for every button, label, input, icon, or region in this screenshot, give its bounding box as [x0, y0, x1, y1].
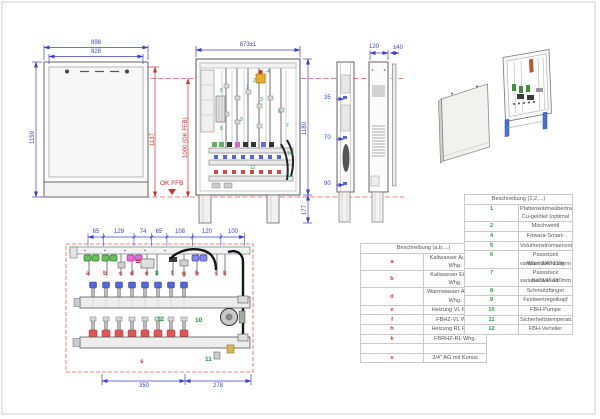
detail-view — [66, 244, 253, 372]
dim-front-outer-width: 898 — [78, 40, 114, 47]
port-b: b — [103, 270, 107, 277]
table-row: 9 Festwertregelkopf — [465, 296, 573, 306]
table-row: 6 Passstück Wärmezählungvariabel 3/4"-11… — [465, 251, 573, 269]
part-label-11: 11 — [287, 174, 292, 179]
port-f: f — [171, 270, 173, 277]
table-row: 7 Passstück Kaltwasservariabel 3/4"-110m… — [465, 268, 573, 286]
detail-dim-278: 278 — [204, 383, 232, 390]
front-view — [44, 62, 148, 197]
pump-profile — [343, 144, 350, 172]
part-label-1: 1 — [246, 86, 249, 91]
table-header: Beschreibung (1,2,...) — [465, 195, 573, 205]
port-h: h — [195, 270, 199, 277]
plate-heat-exchanger — [216, 96, 225, 122]
mixing-valve — [256, 74, 265, 83]
ffb-label: OK FFB — [160, 180, 183, 187]
table-row: 4 Friwara-Smart-Regler — [465, 231, 573, 241]
detail-dim-65a: 65 — [89, 229, 103, 236]
dim-front-height-right: 1137 — [150, 133, 157, 146]
dim-side-90: 90 — [324, 181, 331, 188]
part-label-12: 12 — [250, 166, 256, 171]
iso-red-strip — [529, 59, 534, 73]
shutoff-valves — [212, 142, 274, 147]
manifold-flow — [74, 282, 250, 308]
cabinet-leg — [199, 195, 211, 223]
detail-dim-108: 108 — [173, 229, 187, 236]
detail-dim-350: 350 — [130, 383, 158, 390]
dim-open-base: 177 — [302, 205, 309, 215]
port-e: e — [145, 270, 149, 277]
drawing-sheet: 898 828 1159 1137 1000 (OK FFB) OK FFB 8… — [0, 0, 600, 419]
dim-open-width: 873±1 — [228, 42, 268, 49]
side-views — [337, 62, 396, 222]
detail-dim-74: 74 — [136, 229, 150, 236]
cabinet-leg — [339, 192, 350, 222]
part-label-3: 3 — [260, 98, 263, 103]
wall-rail — [70, 247, 250, 254]
part-label-9: 9 — [240, 118, 243, 123]
door-screw-icon — [65, 70, 69, 74]
detail-label-8: 8 — [155, 270, 159, 277]
table-row: 5 Volumenstromsensor — [465, 241, 573, 251]
dim-side-depth: 120 — [362, 44, 386, 51]
detail-dim-100: 100 — [226, 229, 240, 236]
detail-valves — [84, 255, 207, 268]
dim-door-gap: ±40 — [393, 45, 403, 52]
table-row: 12 FBH-Verteiler — [465, 325, 573, 335]
port-k: k — [223, 270, 227, 277]
table-row: kFBRHZ-RL Whg. — [361, 334, 487, 344]
table-row: s3/4" AG mit Konus — [361, 353, 487, 363]
open-cabinet-view — [196, 59, 300, 223]
dim-front-inner-width: 828 — [78, 49, 114, 56]
table-row — [361, 344, 487, 354]
table-row: 2 Mischventil — [465, 222, 573, 232]
detail-label-12: 12 — [157, 316, 164, 323]
legend-table-numbers: Beschreibung (1,2,...) 1 Plattenwärmeübe… — [464, 194, 573, 335]
part-label-5: 5 — [220, 89, 223, 94]
table-row: 10 FBH-Pumpe — [465, 305, 573, 315]
port-a: a — [86, 270, 90, 277]
port-g: g — [182, 270, 186, 277]
left-panel — [201, 70, 214, 132]
iso-leg — [543, 112, 547, 129]
cabinet-leg — [372, 192, 383, 222]
detail-label-s: s — [140, 358, 144, 365]
part-label-6: 6 — [278, 110, 281, 115]
ffb-marker-icon — [168, 189, 176, 195]
dim-open-height: 1180 — [302, 122, 309, 135]
dim-side-35: 35 — [324, 95, 331, 102]
detail-dim-120: 120 — [200, 229, 214, 236]
port-d: d — [130, 270, 134, 277]
table-row: 8 Schmutzfänger — [465, 286, 573, 296]
dim-ffb-height: 1000 (OK FFB) — [183, 117, 190, 158]
dimensions-red — [148, 67, 188, 197]
port-c: c — [119, 270, 123, 277]
part-label-4: 4 — [267, 70, 270, 75]
dim-front-height-left: 1159 — [30, 131, 37, 144]
door-screw-icon — [125, 70, 129, 74]
part-label-10: 10 — [287, 152, 293, 157]
port-i: i — [215, 270, 217, 277]
detail-label-10: 10 — [195, 317, 202, 324]
part-label-8: 8 — [220, 127, 223, 132]
iso-views — [439, 50, 552, 164]
table-row: 1 PlattenwärmeübertragerCu-gelötet (opti… — [465, 204, 573, 222]
door-profile — [393, 64, 397, 186]
part-label-2: 2 — [253, 79, 256, 84]
detail-label-11: 11 — [205, 356, 212, 363]
table-header-row: Beschreibung (1,2,...) — [465, 195, 573, 205]
detail-dim-65b: 65 — [152, 229, 166, 236]
part-label-7: 7 — [286, 124, 289, 129]
detail-dim-129: 129 — [112, 229, 126, 236]
dim-side-70: 70 — [324, 135, 331, 142]
cabinet-leg — [267, 195, 279, 223]
table-row: 11 Sicherheitstemperaturwächter — [465, 315, 573, 325]
red-cap — [258, 70, 262, 74]
